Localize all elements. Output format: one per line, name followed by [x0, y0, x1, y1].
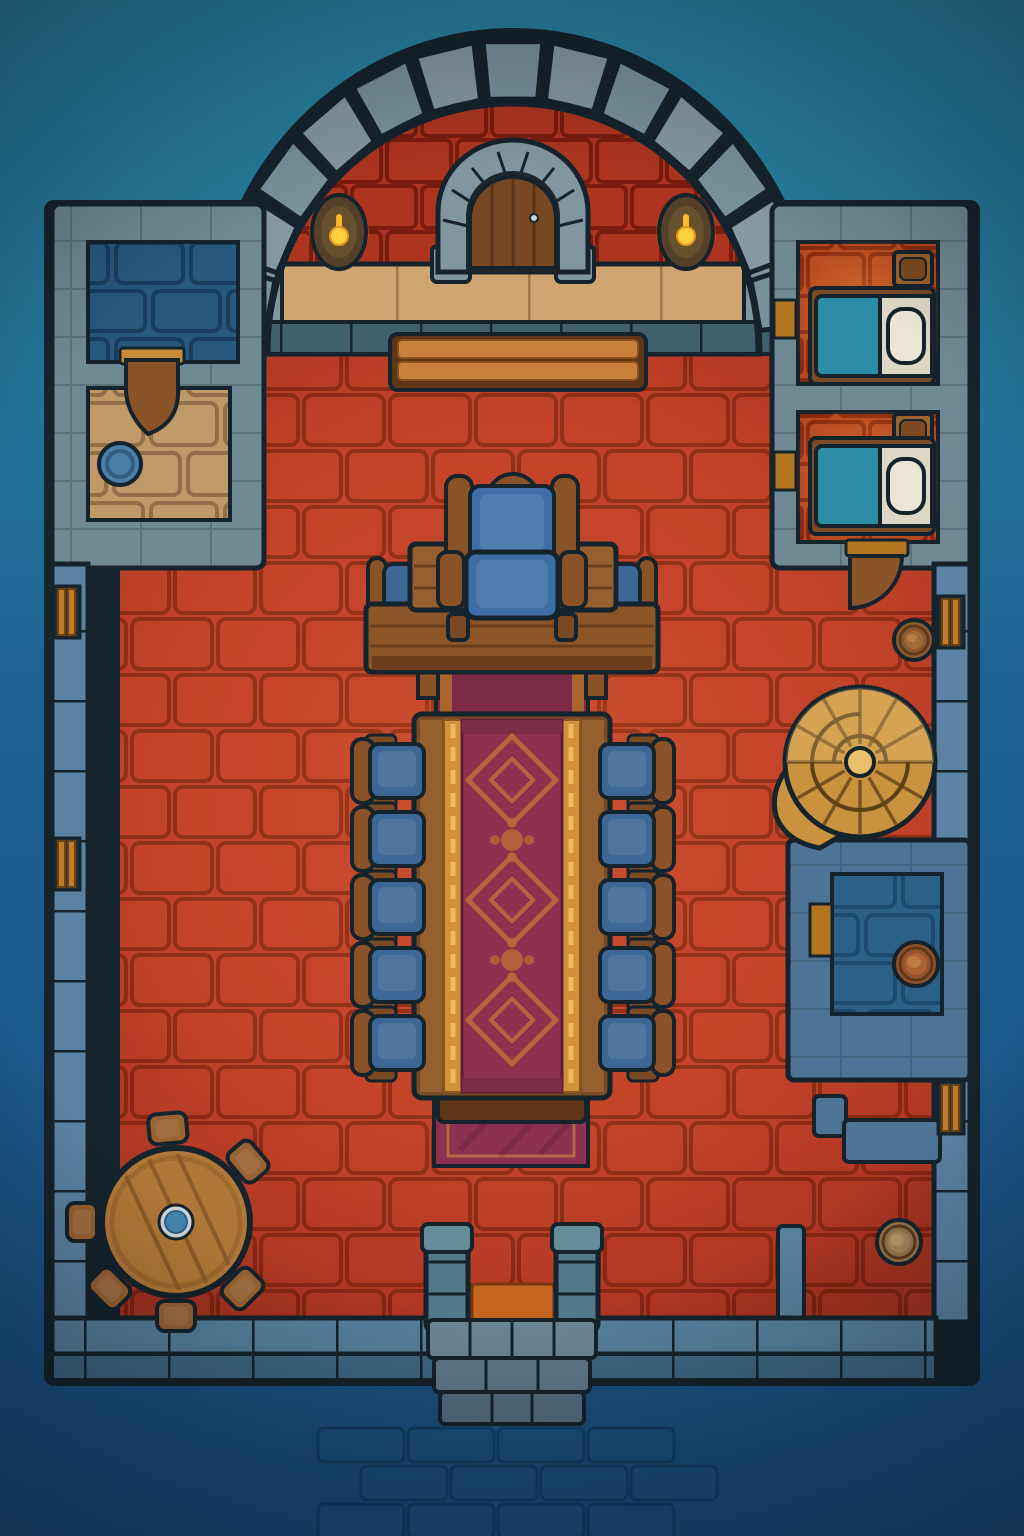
vignette	[0, 0, 1024, 1536]
great-hall-map	[0, 0, 1024, 1536]
battlemap-canvas	[0, 0, 1024, 1536]
